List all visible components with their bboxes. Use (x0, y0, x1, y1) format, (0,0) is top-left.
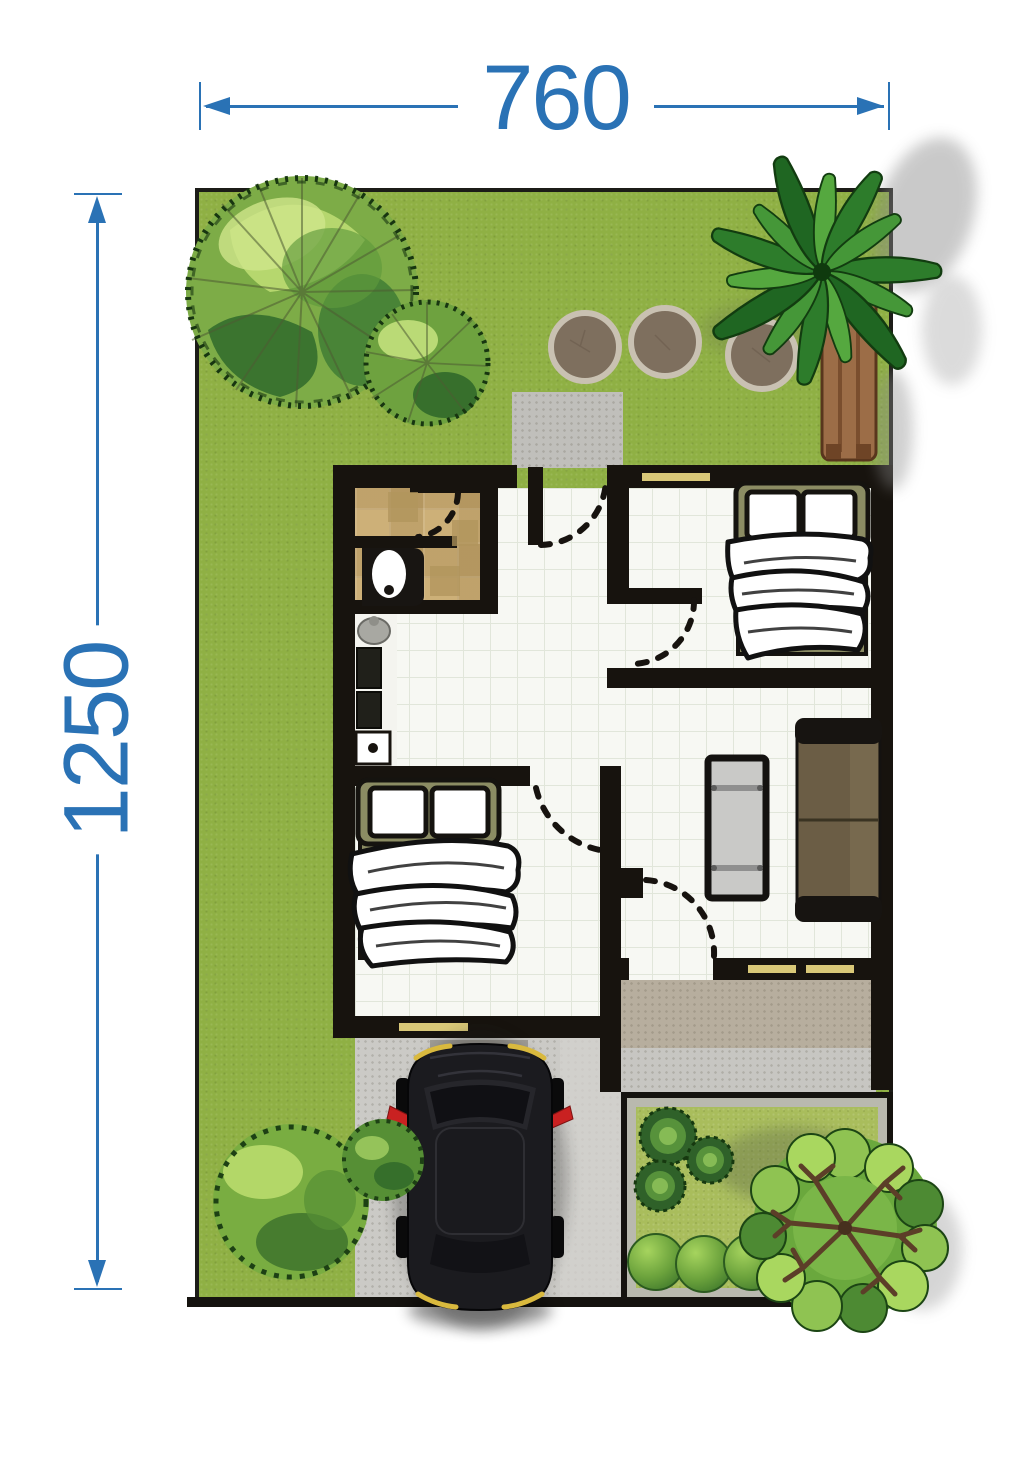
dim-arrow-down-icon (88, 1260, 106, 1287)
dim-tick-top-left (199, 82, 201, 130)
door-mat (430, 1040, 528, 1058)
wall-bath-bottom (333, 600, 498, 614)
dim-arrow-left-icon (203, 97, 230, 115)
wall-living-stub (621, 868, 643, 898)
wall-right (871, 465, 893, 1090)
window-bedroom1 (640, 471, 712, 483)
wall-left (333, 465, 355, 1038)
back-door-pad (512, 392, 623, 468)
wall-front-bedroom2 (333, 1016, 621, 1038)
back-door-leaf (528, 467, 543, 545)
dim-arrow-right-icon (857, 97, 884, 115)
wall-bath-stub (410, 480, 480, 493)
garden-bed (621, 1092, 893, 1303)
wall-bath-divider (355, 536, 457, 548)
window-living-a (746, 963, 798, 975)
paved-walk (621, 1048, 876, 1092)
wall-living-bottom-a (621, 958, 629, 980)
dim-tick-left-top (74, 193, 122, 195)
dim-arrow-up-icon (88, 196, 106, 223)
wall-terrace-side (600, 978, 621, 1092)
wall-hall-right (607, 465, 629, 602)
wall-bedroom1-stub (607, 588, 702, 604)
window-living-b (804, 963, 856, 975)
width-dimension-label: 760 (458, 55, 654, 142)
wall-bath-right (480, 465, 498, 612)
kitchen-strip (355, 614, 397, 770)
terrace (621, 980, 876, 1048)
floor-plan-canvas: 760 1250 (0, 0, 1024, 1462)
window-bedroom2 (397, 1021, 470, 1033)
wall-bedroom2-top (333, 766, 530, 786)
bathroom-floor (355, 488, 480, 612)
dim-tick-left-bottom (74, 1288, 122, 1290)
wall-bedroom1-bottom (607, 668, 893, 688)
lot-bottom-line (187, 1297, 899, 1307)
garden-bed-grass (636, 1107, 878, 1288)
height-dimension-label: 1250 (53, 626, 140, 855)
wall-living-bottom-b (713, 958, 893, 980)
dim-tick-top-right (888, 82, 890, 130)
